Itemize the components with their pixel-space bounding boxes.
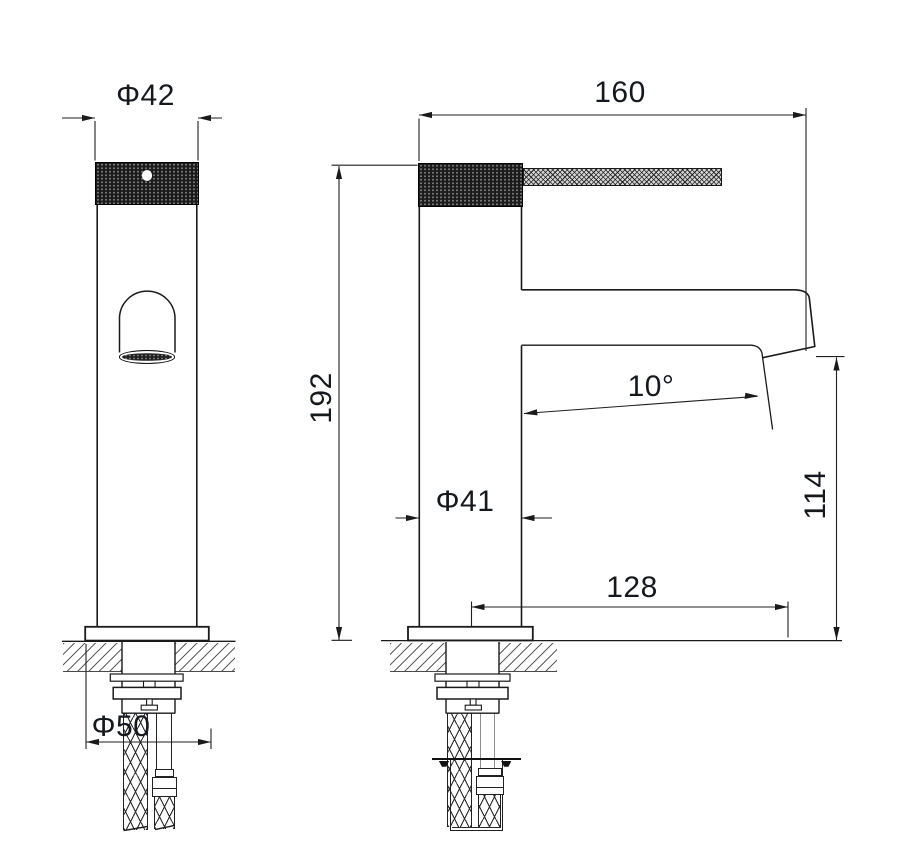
dim-label-handle-width: Φ42 xyxy=(96,81,196,111)
mounting-nut-front xyxy=(113,687,181,699)
dim-label-overall-height: 192 xyxy=(307,348,337,448)
dim-label-spout-offset: 128 xyxy=(582,573,682,603)
mounting-nut-side xyxy=(437,687,508,699)
dim-label-spout-angle: 10° xyxy=(601,372,701,402)
handle-indicator-dot xyxy=(142,170,153,181)
faucet-technical-drawing: Φ42 160 192 Φ41 10° 114 128 Φ50 xyxy=(0,0,919,858)
sleeve-inner-bottom-line xyxy=(452,827,501,828)
dim-label-spout-reach: 160 xyxy=(570,78,670,108)
dim-label-spout-height: 114 xyxy=(801,445,831,545)
dim-label-base-diameter: Φ50 xyxy=(71,712,171,742)
base-flange-side xyxy=(408,627,533,641)
hose-tail-side xyxy=(478,795,501,827)
countertop-hatch-front-left xyxy=(63,643,122,673)
handle-knob-front xyxy=(95,162,199,206)
base-flange-front xyxy=(85,627,209,641)
washer-front xyxy=(110,674,183,681)
mounting-hardware xyxy=(85,627,533,710)
hose-connector-nut-front xyxy=(152,777,177,797)
mounting-plate-side xyxy=(432,758,521,760)
washer-side xyxy=(435,674,510,681)
countertop-hatch-side-right xyxy=(499,643,557,673)
countertop-hatch-front-right xyxy=(175,643,235,673)
hose-connector-nut-side xyxy=(476,776,504,795)
hose-tail-front xyxy=(154,797,175,830)
handle-lever-side xyxy=(523,168,722,187)
aerator-front xyxy=(119,350,175,364)
hose-connector-collar-side xyxy=(478,768,502,776)
dim-label-body-diameter: Φ41 xyxy=(415,487,515,517)
hose-connector-collar-front xyxy=(155,769,174,777)
handle-knob-side xyxy=(418,163,523,208)
countertop-hatch-side-left xyxy=(390,643,446,673)
